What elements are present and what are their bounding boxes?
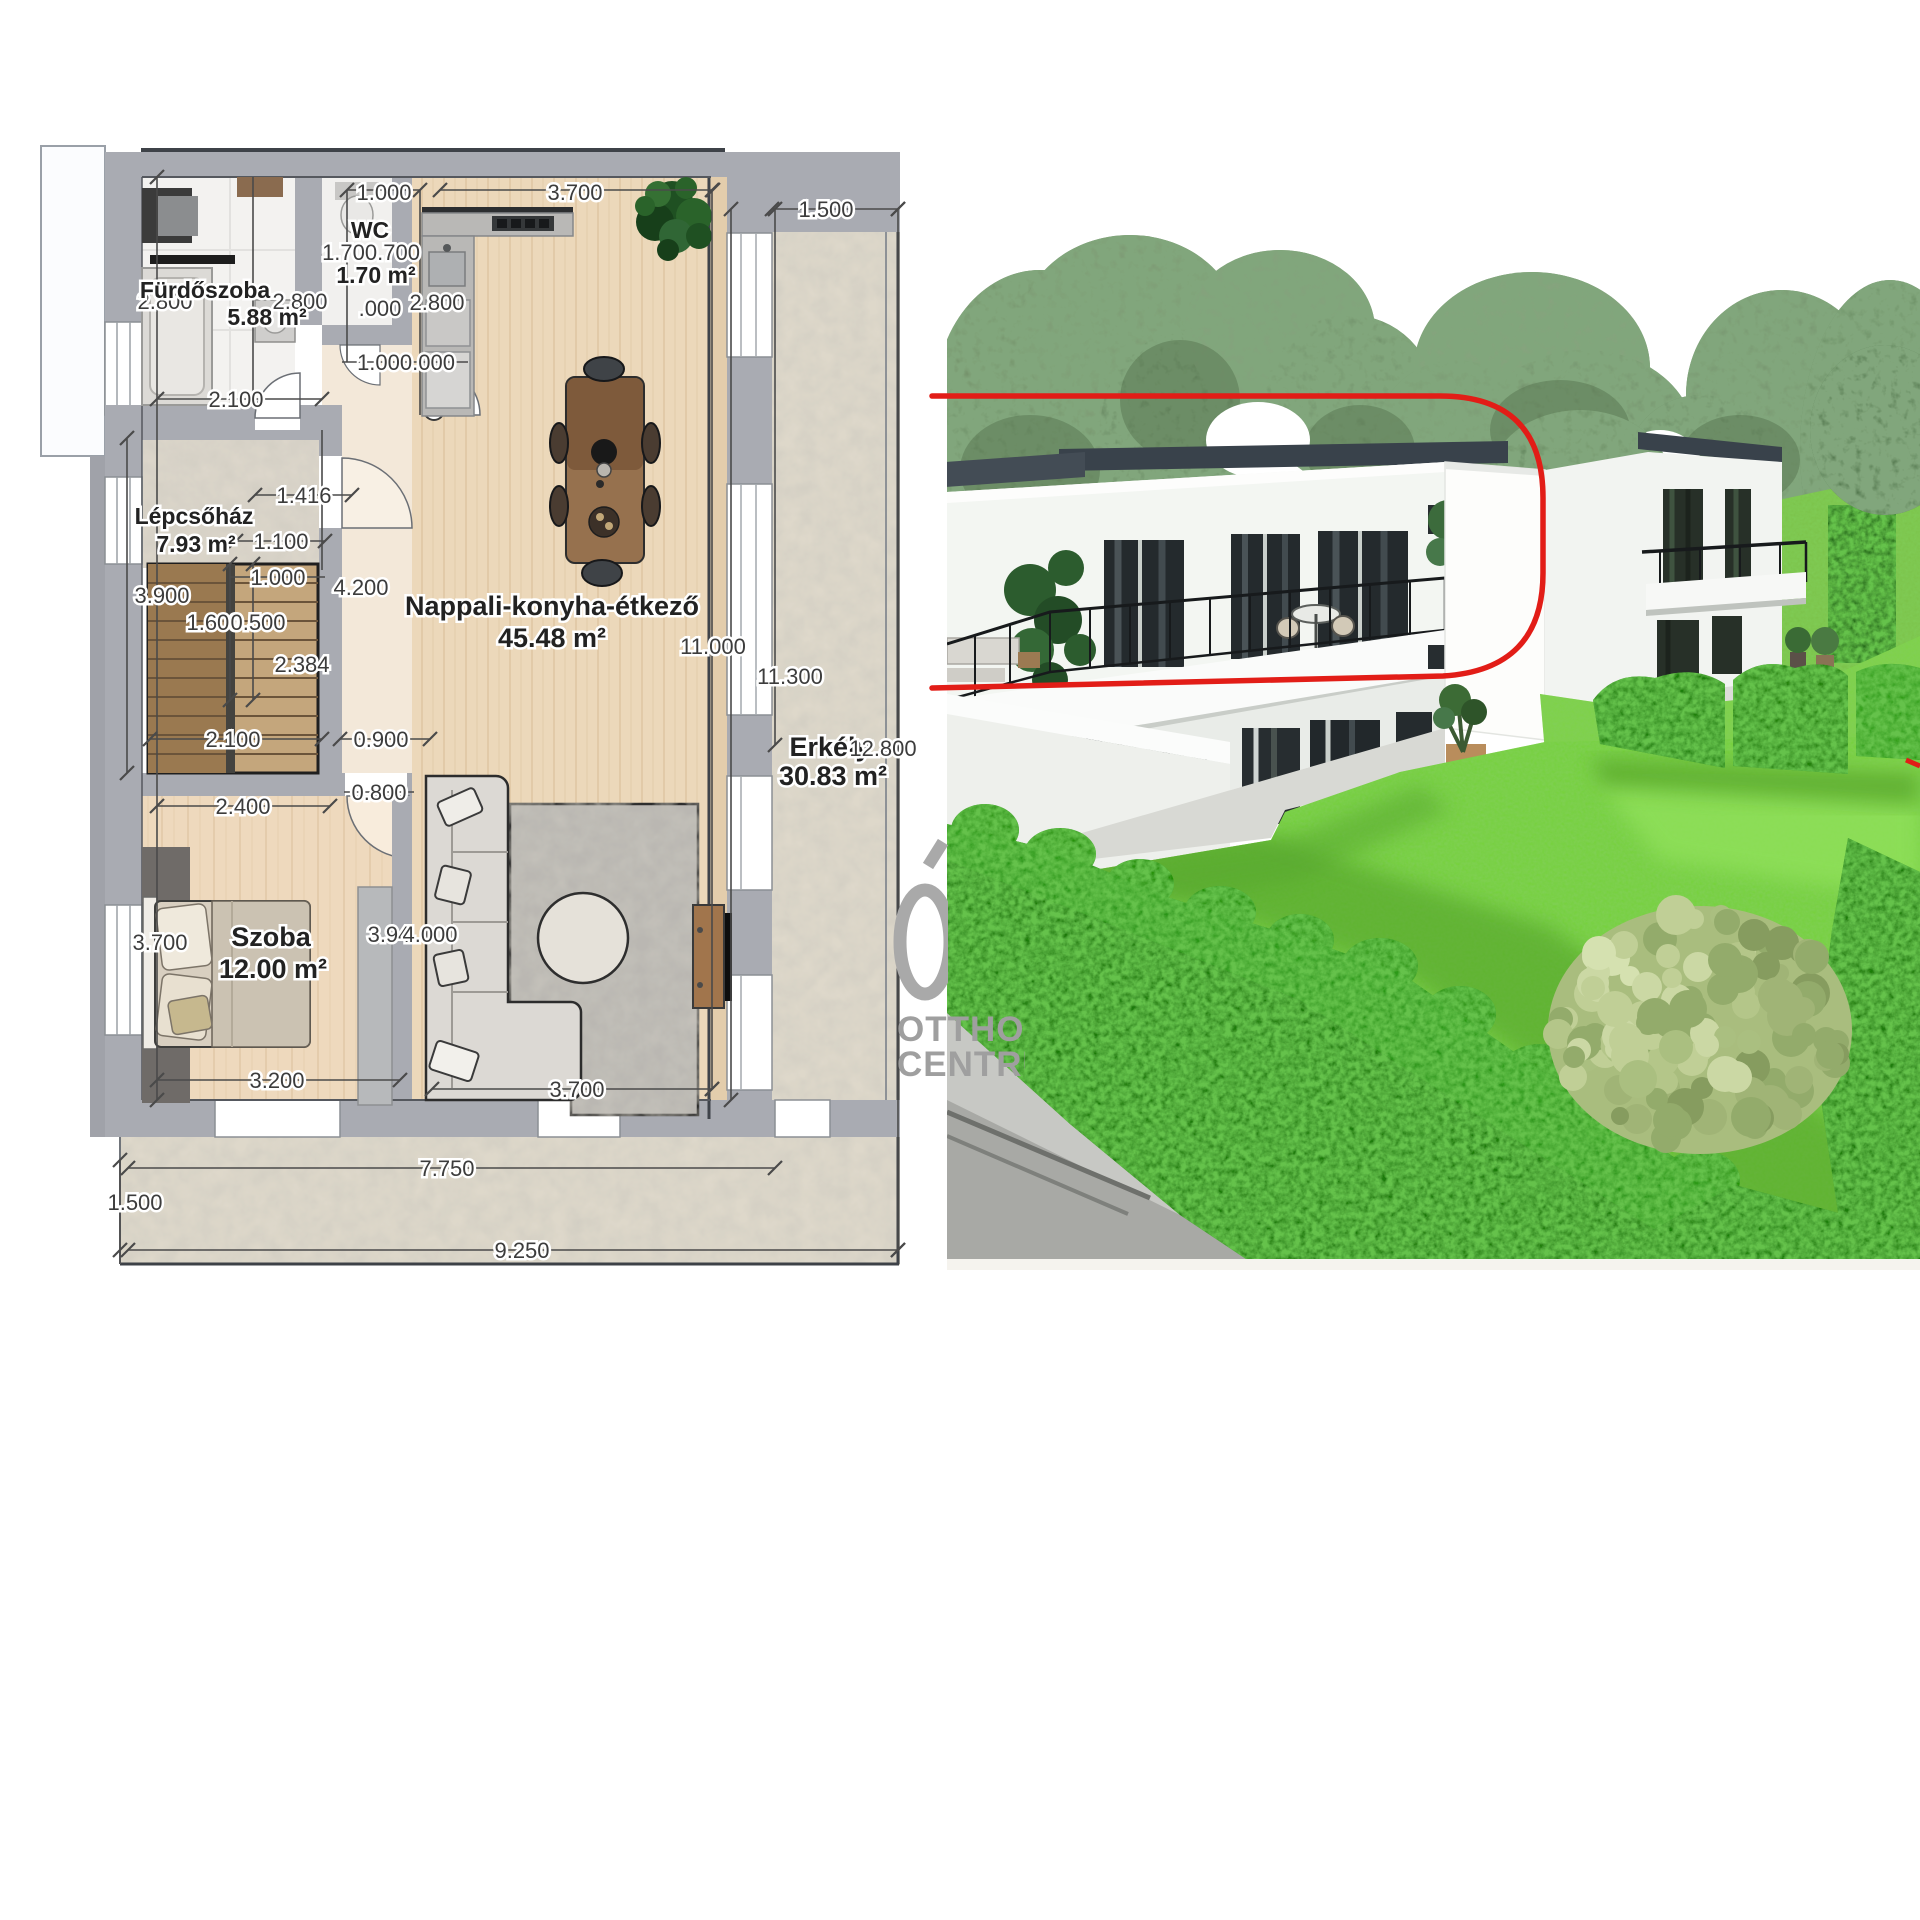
svg-text:11.000: 11.000 [680, 634, 746, 659]
svg-text:7.750: 7.750 [419, 1156, 474, 1181]
svg-text:1.500: 1.500 [798, 197, 853, 222]
svg-text:9.250: 9.250 [494, 1238, 549, 1263]
svg-text:2.100: 2.100 [205, 727, 260, 752]
svg-text:2.800: 2.800 [409, 290, 464, 315]
svg-text:Szoba: Szoba [231, 922, 311, 952]
svg-text:1.000.000: 1.000.000 [357, 350, 455, 375]
svg-text:1.100: 1.100 [253, 529, 308, 554]
svg-text:0.500: 0.500 [230, 610, 285, 635]
svg-text:11.300: 11.300 [757, 664, 823, 689]
svg-text:12.00 m²: 12.00 m² [219, 954, 327, 984]
svg-text:3.900: 3.900 [134, 583, 189, 608]
svg-text:2.384: 2.384 [274, 652, 329, 677]
svg-text:2.400: 2.400 [215, 794, 270, 819]
svg-text:1.000: 1.000 [356, 180, 411, 205]
svg-text:5.88 m²: 5.88 m² [227, 304, 307, 330]
svg-text:1.416: 1.416 [276, 483, 331, 508]
svg-text:1.70 m²: 1.70 m² [336, 262, 416, 288]
svg-text:30.83 m²: 30.83 m² [779, 761, 887, 791]
svg-text:.000: .000 [359, 296, 402, 321]
svg-text:3.200: 3.200 [249, 1068, 304, 1093]
svg-text:0.800: 0.800 [351, 780, 406, 805]
svg-text:1.500: 1.500 [107, 1190, 162, 1215]
svg-text:4.000: 4.000 [402, 922, 457, 947]
svg-text:12.800: 12.800 [849, 736, 916, 761]
svg-text:Nappali-konyha-étkező: Nappali-konyha-étkező [405, 591, 699, 621]
svg-text:2.100: 2.100 [208, 387, 263, 412]
svg-text:7.93 m²: 7.93 m² [156, 531, 236, 557]
svg-text:4.200: 4.200 [333, 575, 388, 600]
svg-text:3.700: 3.700 [547, 180, 602, 205]
svg-text:Fürdőszoba: Fürdőszoba [140, 277, 271, 303]
svg-text:3.700: 3.700 [132, 930, 187, 955]
svg-text:Lépcsőház: Lépcsőház [135, 503, 254, 529]
svg-text:3.700: 3.700 [549, 1077, 604, 1102]
svg-text:0.900: 0.900 [353, 727, 408, 752]
svg-text:45.48 m²: 45.48 m² [498, 623, 606, 653]
svg-text:1.000: 1.000 [250, 565, 305, 590]
